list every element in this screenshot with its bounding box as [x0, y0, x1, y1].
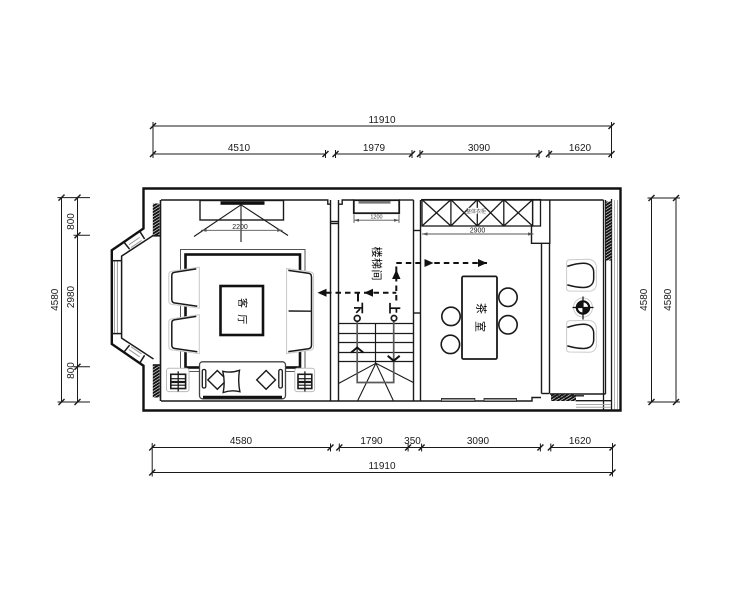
svg-text:整体衣柜: 整体衣柜 — [466, 208, 486, 215]
svg-text:3090: 3090 — [467, 436, 490, 447]
svg-text:4580: 4580 — [50, 288, 61, 311]
svg-text:3090: 3090 — [468, 143, 491, 154]
svg-text:4510: 4510 — [228, 143, 251, 154]
svg-text:2980: 2980 — [66, 285, 77, 308]
svg-text:客: 客 — [236, 298, 249, 308]
svg-text:4580: 4580 — [663, 288, 674, 311]
svg-text:11910: 11910 — [368, 461, 396, 472]
svg-text:楼: 楼 — [370, 247, 384, 258]
svg-text:800: 800 — [66, 362, 77, 379]
svg-text:11910: 11910 — [368, 115, 396, 126]
svg-text:2200: 2200 — [232, 224, 248, 231]
svg-text:4580: 4580 — [639, 288, 650, 311]
svg-text:800: 800 — [66, 213, 77, 230]
svg-text:厅: 厅 — [236, 314, 247, 324]
svg-text:1790: 1790 — [360, 436, 383, 447]
svg-text:梯: 梯 — [370, 258, 383, 269]
svg-text:1620: 1620 — [569, 436, 592, 447]
svg-text:茶: 茶 — [475, 303, 488, 314]
svg-text:1200: 1200 — [370, 215, 382, 221]
svg-text:350: 350 — [404, 436, 421, 447]
svg-text:1620: 1620 — [569, 143, 592, 154]
svg-text:间: 间 — [370, 270, 383, 281]
svg-text:2900: 2900 — [470, 228, 486, 235]
svg-text:室: 室 — [474, 321, 488, 332]
svg-text:1979: 1979 — [363, 143, 386, 154]
svg-text:推拉窗: 推拉窗 — [552, 393, 567, 400]
svg-text:4580: 4580 — [230, 436, 253, 447]
